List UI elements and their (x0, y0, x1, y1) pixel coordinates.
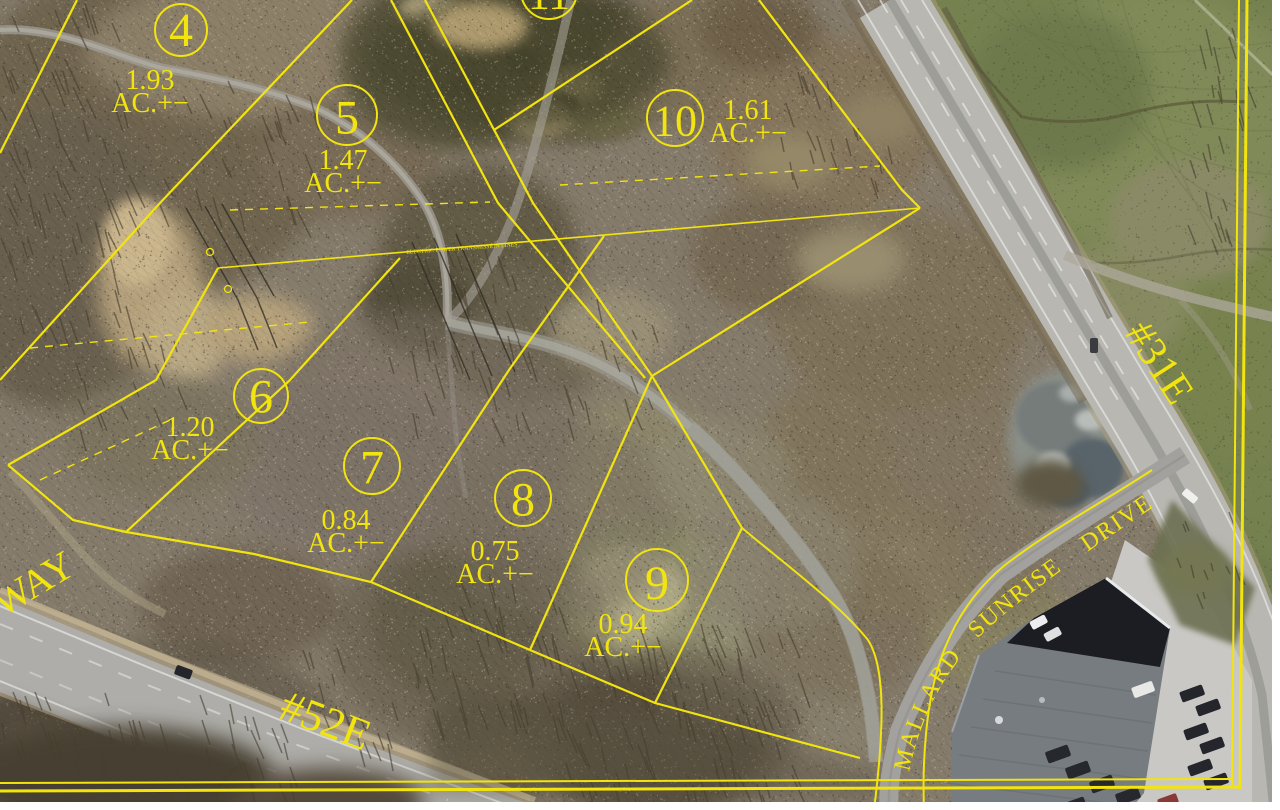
svg-text:AC.+−: AC.+− (709, 118, 786, 149)
svg-text:9: 9 (645, 557, 669, 610)
svg-text:6: 6 (249, 371, 273, 424)
svg-text:5: 5 (335, 92, 359, 145)
svg-text:8: 8 (511, 473, 535, 526)
svg-text:AC.+−: AC.+− (584, 632, 661, 663)
svg-text:7: 7 (360, 441, 384, 494)
svg-text:10: 10 (653, 96, 697, 145)
svg-text:AC.+−: AC.+− (307, 528, 384, 559)
svg-text:11: 11 (528, 0, 570, 18)
svg-text:AC.+−: AC.+− (304, 168, 381, 199)
svg-text:AC.+−: AC.+− (151, 435, 228, 466)
svg-text:AC.+−: AC.+− (111, 88, 188, 119)
svg-text:4: 4 (169, 4, 193, 57)
svg-text:AC.+−: AC.+− (456, 559, 533, 590)
